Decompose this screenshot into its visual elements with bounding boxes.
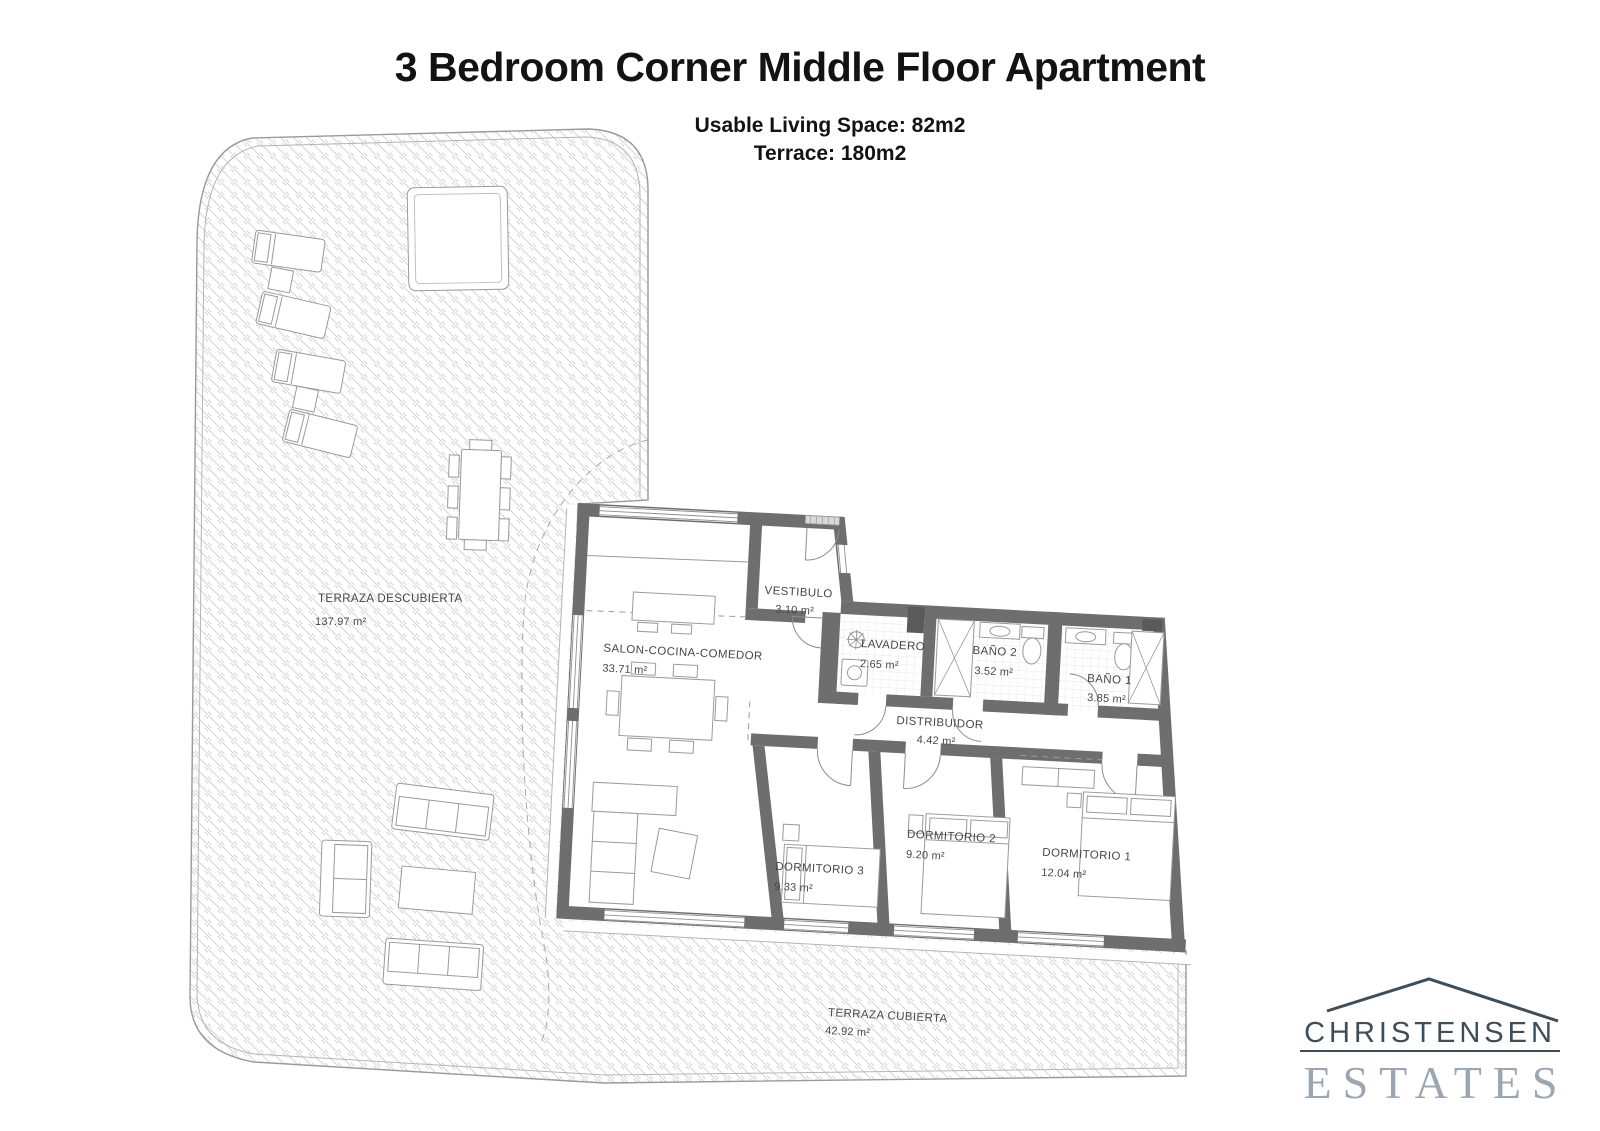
outdoor-loveseat bbox=[319, 840, 372, 918]
coffee-table bbox=[398, 866, 475, 914]
room-area: 4.42 m² bbox=[916, 734, 955, 748]
logo-type-text: ESTATES bbox=[1304, 1057, 1569, 1108]
shower bbox=[1128, 631, 1164, 705]
room-area: 9.20 m² bbox=[906, 849, 945, 863]
apartment: SALON-COCINA-COMEDOR 33.71 m² VESTIBULO … bbox=[545, 502, 1214, 964]
room-label: BAÑO 2 bbox=[972, 644, 1017, 659]
room-label: TERRAZA DESCUBIERTA bbox=[318, 593, 463, 605]
logo-name-text: CHRISTENSEN bbox=[1304, 1017, 1556, 1049]
room-area: 3.52 m² bbox=[974, 665, 1013, 679]
room-area: 3.85 m² bbox=[1087, 692, 1126, 706]
pergola bbox=[407, 186, 509, 291]
entry-threshold bbox=[805, 515, 839, 525]
room-area: 12.04 m² bbox=[1041, 867, 1087, 881]
shower bbox=[934, 619, 974, 697]
side-table bbox=[292, 386, 318, 412]
roof-icon bbox=[1327, 979, 1558, 1021]
room-area: 2.65 m² bbox=[860, 658, 899, 672]
room-area: 33.71 m² bbox=[602, 663, 648, 677]
sink bbox=[1065, 628, 1106, 645]
wardrobe bbox=[1022, 767, 1095, 789]
outdoor-sofa bbox=[383, 938, 484, 991]
room-area: 9.33 m² bbox=[774, 881, 813, 895]
company-logo: CHRISTENSEN ESTATES bbox=[1300, 979, 1569, 1108]
room-area: 137.97 m² bbox=[315, 616, 366, 628]
side-table bbox=[268, 267, 294, 293]
floor-plan-drawing: TERRAZA DESCUBIERTA 137.97 m² TERRAZA CU… bbox=[0, 0, 1600, 1131]
room-area: 42.92 m² bbox=[825, 1025, 871, 1039]
room-area: 3.10 m² bbox=[775, 603, 814, 617]
sink bbox=[980, 622, 1021, 639]
room-label: BAÑO 1 bbox=[1087, 672, 1132, 687]
floor-plan-page: 3 Bedroom Corner Middle Floor Apartment … bbox=[0, 0, 1600, 1131]
